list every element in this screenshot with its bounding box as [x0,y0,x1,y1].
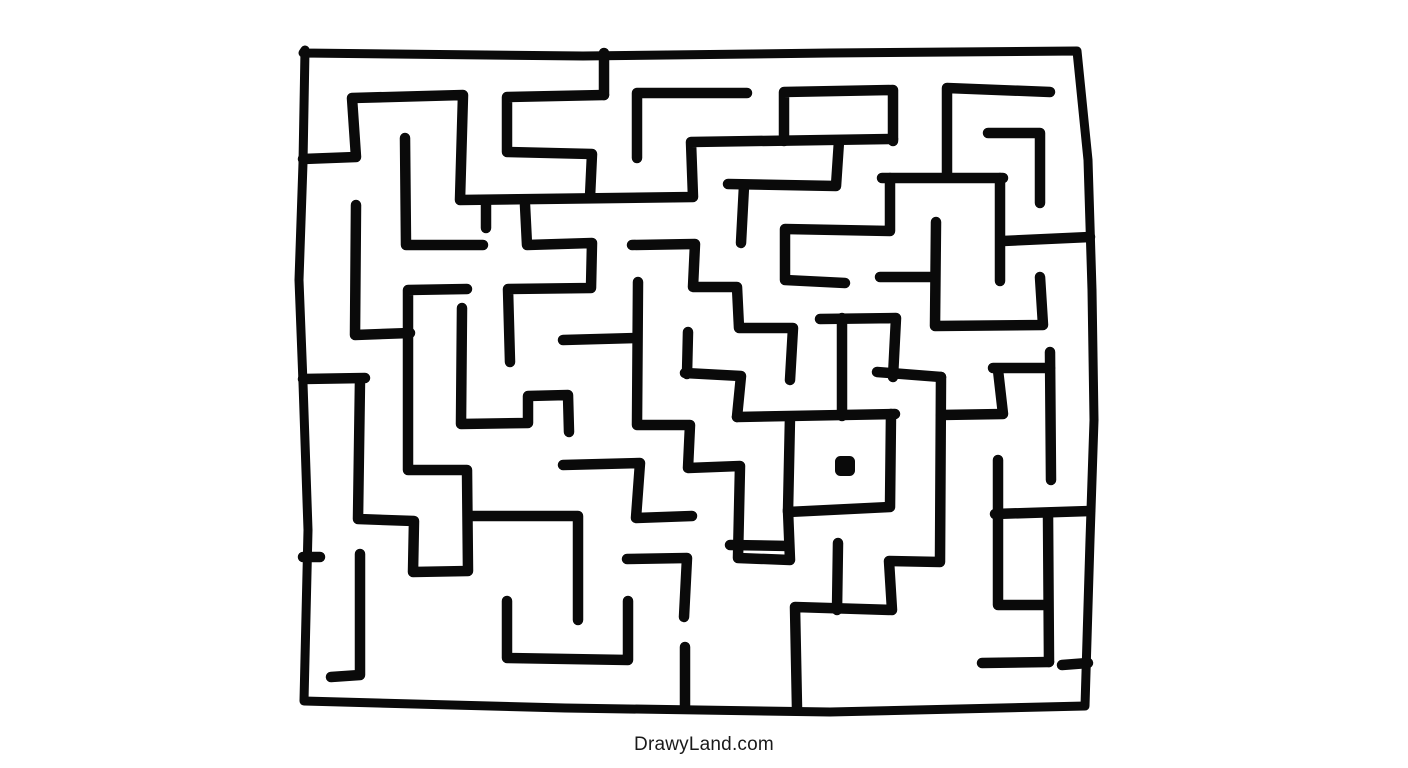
maze-area [0,0,1408,768]
maze-wall [405,138,483,245]
maze-wall [1050,352,1051,480]
maze-wall [627,558,687,617]
maze-wall [785,178,890,283]
maze-wall [563,338,636,340]
maze-wall [730,545,789,546]
maze-wall [737,414,895,417]
maze-drawing[interactable] [0,0,1408,768]
maze-goal-dot-group [835,456,855,476]
maze-wall [995,511,1090,514]
maze-wall [687,332,688,374]
maze-wall [1062,663,1088,665]
maze-wall [982,662,1049,663]
maze-wall [331,554,360,677]
maze-wall [632,244,793,380]
maze-wall [685,373,741,417]
maze-wall [941,370,1003,415]
maze-wall [303,378,365,379]
site-watermark: DrawyLand.com [0,734,1408,756]
maze-wall [507,601,628,660]
maze-wall [877,372,941,377]
maze-wall [998,460,1048,605]
maze-wall [728,141,839,186]
maze-wall [470,516,578,620]
maze-wall [784,90,893,141]
maze-wall [507,95,604,197]
maze-wall [461,308,569,432]
maze-wall [837,543,838,610]
maze-wall [1003,237,1090,241]
maze-wall [563,463,692,518]
maze-wall [741,186,744,243]
page: DrawyLand.com [0,0,1408,768]
maze-walls-group [303,53,1090,708]
goal-dot [835,456,855,476]
maze-wall [795,377,941,708]
maze-wall [1048,514,1049,662]
